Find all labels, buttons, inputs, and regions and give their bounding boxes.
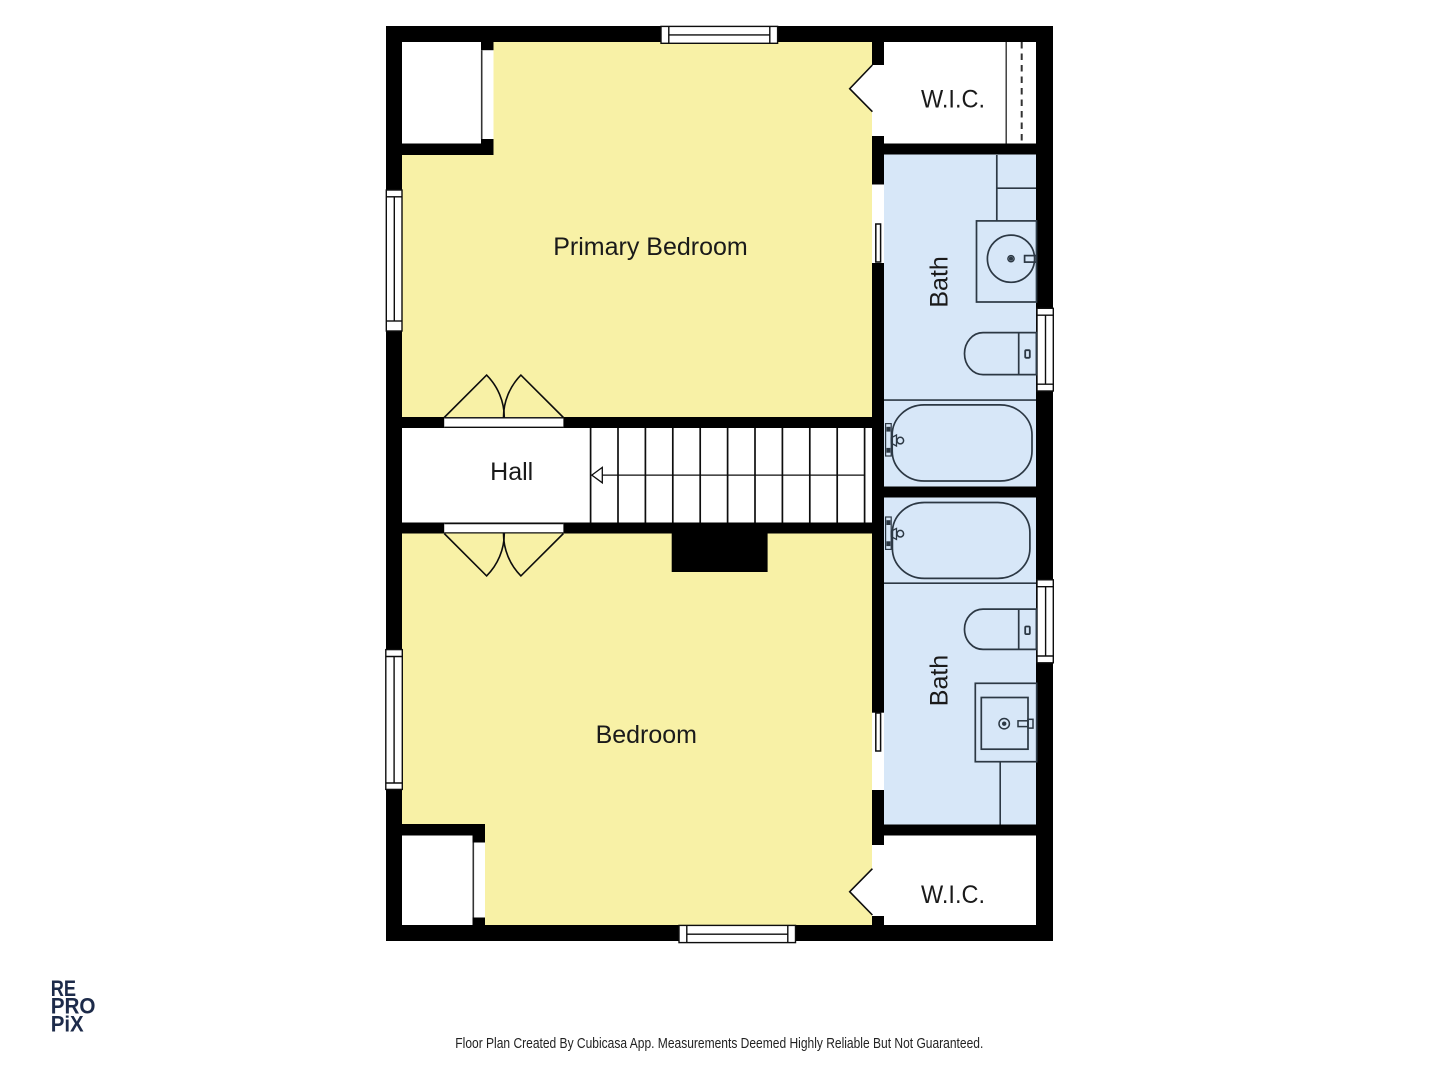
svg-text:Floor Plan Created By Cubicasa: Floor Plan Created By Cubicasa App. Meas… [455, 1036, 983, 1052]
svg-text:Primary Bedroom: Primary Bedroom [553, 233, 748, 261]
svg-text:PiX: PiX [51, 1011, 84, 1036]
svg-text:W.I.C.: W.I.C. [921, 85, 985, 113]
svg-text:Bath: Bath [925, 256, 953, 307]
svg-text:W.I.C.: W.I.C. [921, 881, 985, 909]
svg-text:Hall: Hall [490, 458, 533, 486]
svg-text:Bath: Bath [925, 655, 953, 706]
svg-text:Bedroom: Bedroom [596, 721, 697, 749]
